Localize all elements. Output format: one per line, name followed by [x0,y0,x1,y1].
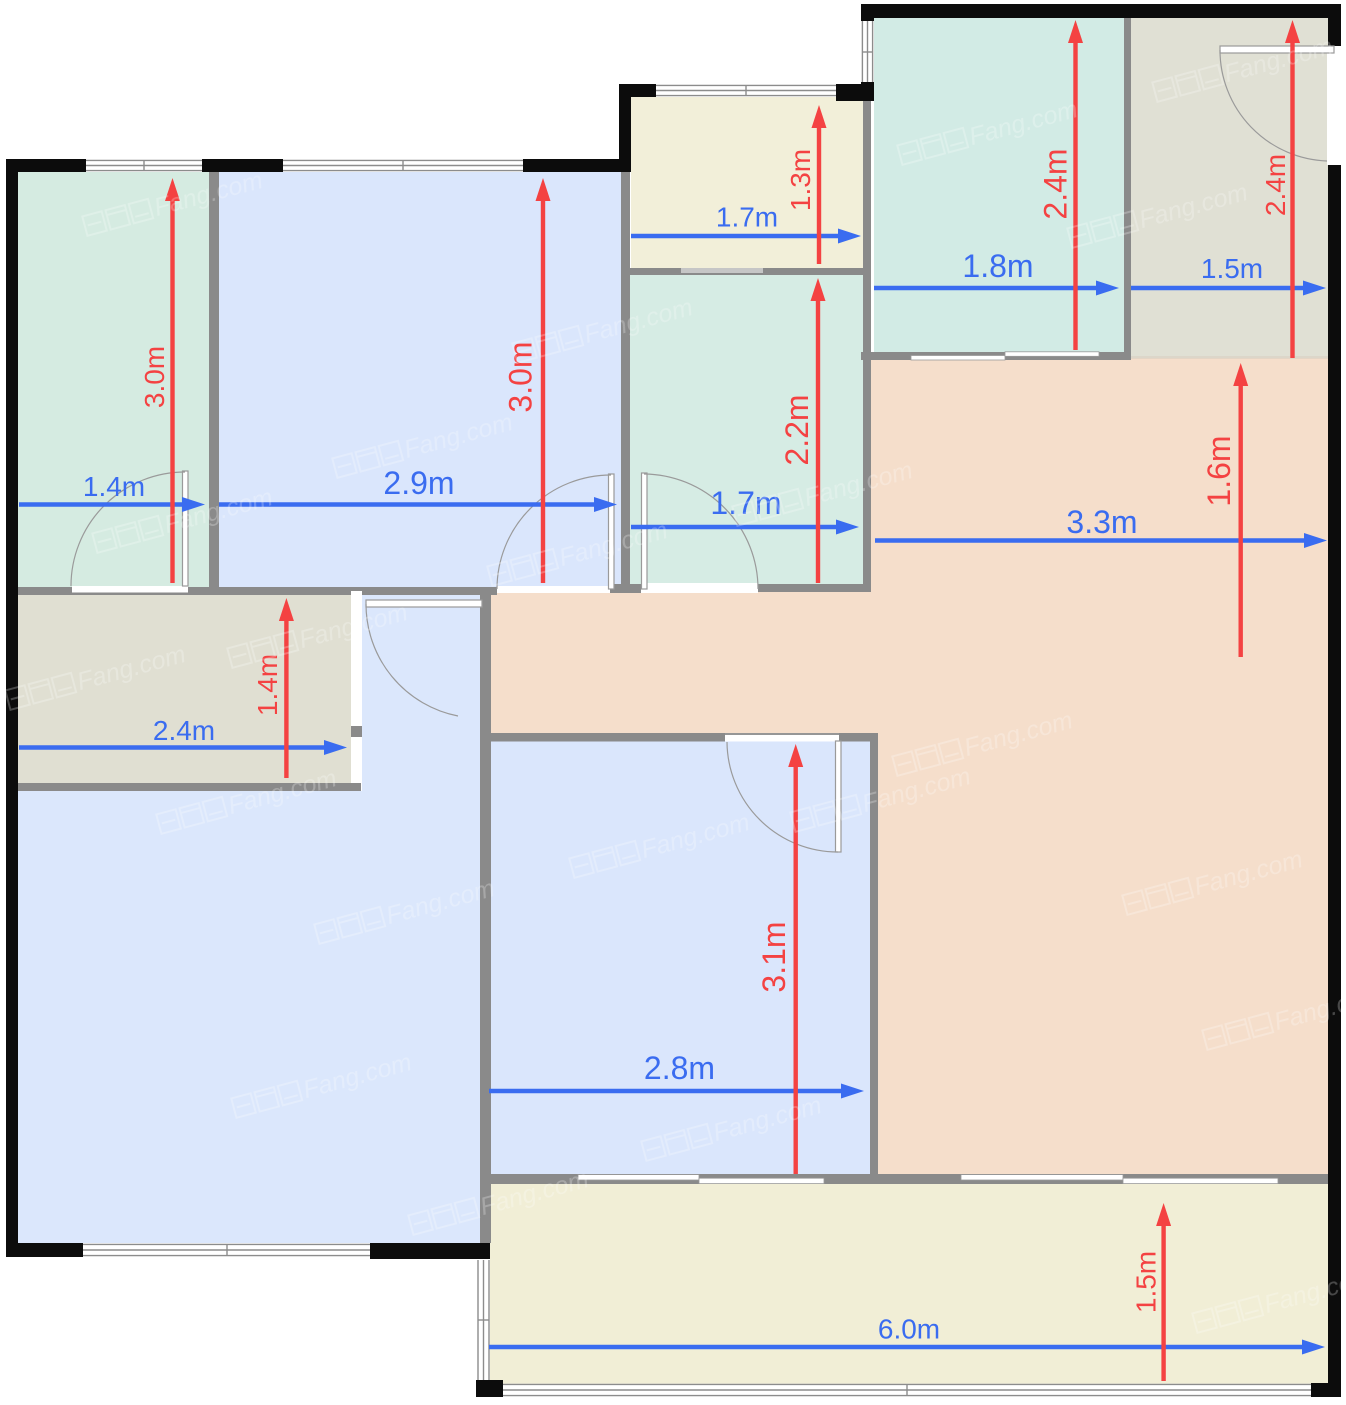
svg-text:2.4m: 2.4m [1260,154,1291,216]
svg-text:3.0m: 3.0m [139,346,170,408]
svg-text:1.4m: 1.4m [83,471,145,502]
svg-text:2.4m: 2.4m [1038,148,1074,219]
svg-text:1.5m: 1.5m [1201,253,1263,284]
svg-text:3.3m: 3.3m [1066,504,1137,540]
svg-text:2.9m: 2.9m [383,465,454,501]
svg-text:1.4m: 1.4m [252,654,283,716]
svg-text:6.0m: 6.0m [878,1314,940,1345]
svg-text:3.1m: 3.1m [756,921,792,992]
svg-text:2.2m: 2.2m [779,394,815,465]
svg-text:2.8m: 2.8m [644,1050,715,1086]
svg-text:1.5m: 1.5m [1131,1251,1162,1313]
svg-text:1.8m: 1.8m [962,248,1033,284]
svg-text:2.4m: 2.4m [153,715,215,746]
svg-text:1.7m: 1.7m [716,202,778,233]
svg-text:1.3m: 1.3m [785,149,816,211]
svg-text:1.6m: 1.6m [1201,435,1237,506]
